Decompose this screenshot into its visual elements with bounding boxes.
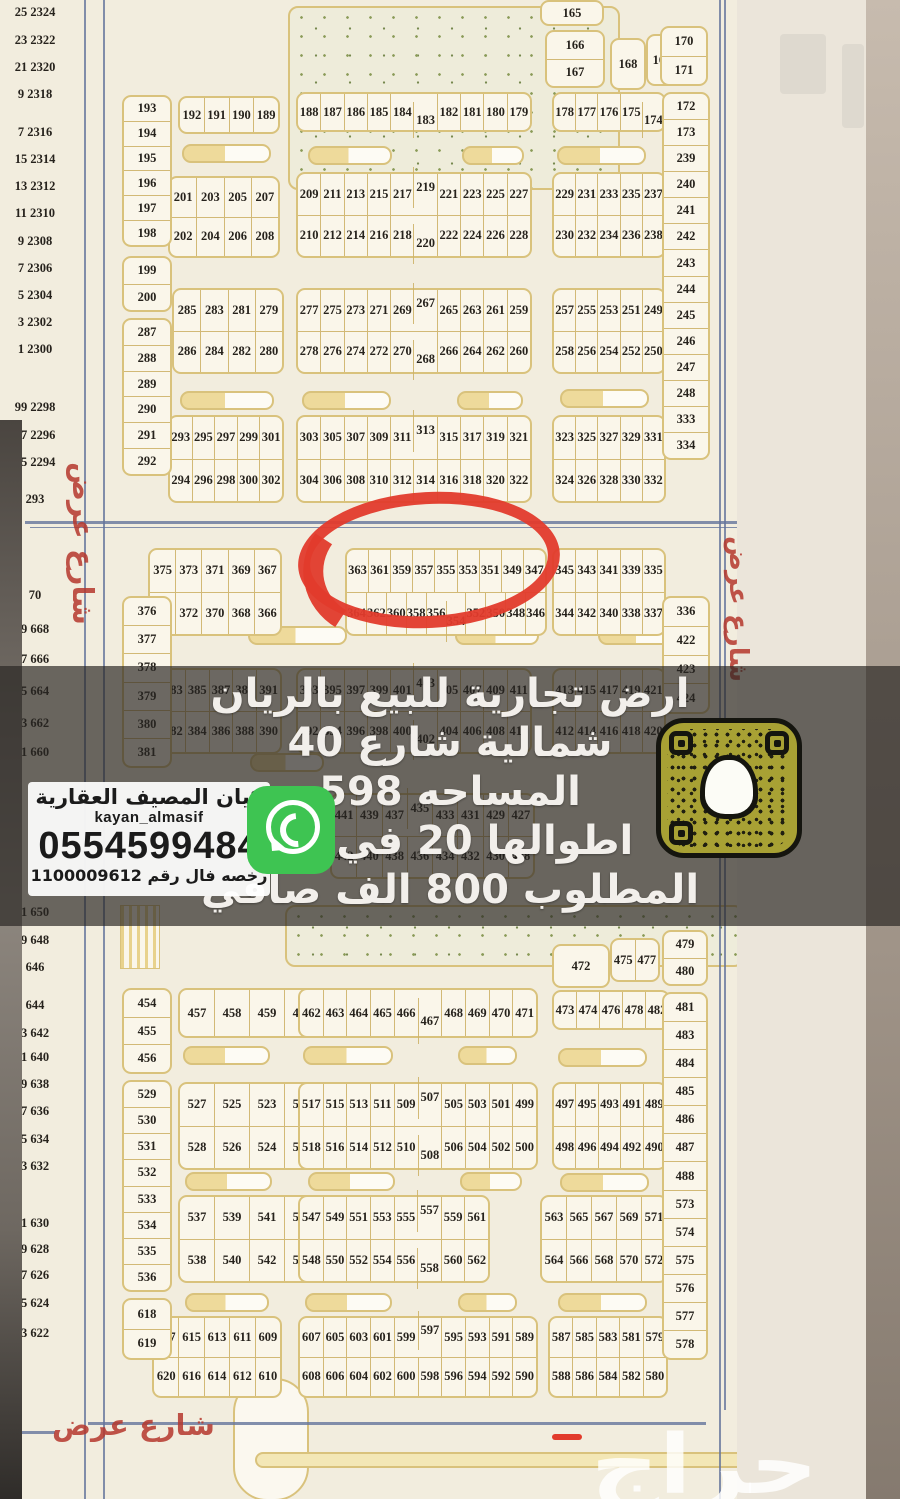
plot-number: 336 — [664, 598, 708, 626]
plot-row: 201203205207 — [170, 178, 278, 217]
plot-number: 277 — [298, 290, 320, 331]
plot-number: 268 — [413, 340, 436, 381]
plot-number: 553 — [370, 1197, 394, 1239]
agency-handle: kayan_almasif — [28, 809, 270, 826]
street-median — [462, 146, 524, 165]
plot-number: 577 — [664, 1302, 706, 1330]
plot-number: 181 — [460, 94, 483, 130]
snapchat-ghost-icon — [705, 760, 753, 814]
plot-number: 606 — [323, 1358, 347, 1397]
plot-number: 368 — [228, 593, 254, 635]
plot-number: 241 — [664, 197, 708, 223]
plot-number: 601 — [370, 1318, 394, 1357]
margin-artifact — [780, 34, 826, 94]
plot-row: 293295297299301 — [170, 417, 282, 459]
plot-block: 563565567569571564566568570572 — [540, 1195, 668, 1283]
plot-number: 530 — [124, 1107, 170, 1133]
plot-number: 556 — [394, 1240, 418, 1282]
plot-block: 5175155135115095075055035014995185165145… — [298, 1082, 538, 1170]
plot-block: 178177176175174 — [552, 92, 666, 132]
plot-number: 213 — [344, 174, 367, 215]
plot-number: 370 — [201, 593, 227, 635]
plot-number: 548 — [300, 1240, 323, 1282]
plot-number: 569 — [616, 1197, 641, 1239]
plot-number: 211 — [320, 174, 343, 215]
snapcode-corner-marker — [669, 821, 693, 845]
plot-number: 513 — [346, 1084, 370, 1126]
plot-number: 263 — [460, 290, 483, 331]
plot-number: 291 — [124, 422, 170, 448]
plot-number: 302 — [259, 460, 282, 502]
plot-number: 313 — [413, 410, 436, 452]
plot-number: 297 — [214, 417, 237, 459]
plot-number: 592 — [489, 1358, 513, 1397]
plot-block: 5475495515535555575595615485505525545565… — [298, 1195, 490, 1283]
plot-number: 199 — [124, 258, 170, 284]
plot-number: 210 — [298, 216, 320, 257]
plot-number: 498 — [554, 1127, 575, 1169]
plot-number: 174 — [642, 102, 664, 138]
plot-row: 229231233235237 — [554, 174, 664, 215]
plot-column: 199200 — [122, 256, 172, 312]
plot-number: 463 — [323, 990, 347, 1036]
plot-number: 493 — [598, 1084, 620, 1126]
snapcode-corner-marker — [669, 731, 693, 755]
plot-number: 504 — [465, 1127, 489, 1169]
plot-block: 3033053073093113133153173193213043063083… — [296, 415, 532, 503]
plot-row: 324326328330332 — [554, 459, 664, 502]
plot-row: 608606604602600598596594592590 — [300, 1357, 536, 1397]
plot-block: 188187186185184183182181180179 — [296, 92, 532, 132]
plot-number: 328 — [597, 460, 619, 502]
plot-number: 223 — [460, 174, 483, 215]
plot-number: 492 — [620, 1127, 642, 1169]
plot-row: 285283281279 — [174, 290, 282, 331]
left-edge-strip — [0, 420, 22, 1499]
plot-block: 497495493491489498496494492490 — [552, 1082, 667, 1170]
plot-block: 229231233235237230232234236238 — [552, 172, 666, 258]
plot-number: 173 — [664, 119, 708, 145]
haraj-logo: حراج — [509, 1418, 900, 1499]
plot-number: 481 — [664, 994, 706, 1021]
plot-number: 187 — [320, 94, 343, 130]
plot-number: 226 — [483, 216, 506, 257]
plot-number: 217 — [390, 174, 413, 215]
plot-number: 232 — [575, 216, 597, 257]
plot-number: 267 — [413, 283, 436, 324]
plot-number: 266 — [437, 332, 460, 373]
plot-number: 465 — [370, 990, 394, 1036]
plot-number: 536 — [124, 1264, 170, 1290]
plot-number: 567 — [591, 1197, 616, 1239]
street-median — [183, 1046, 270, 1065]
plot-number: 195 — [124, 146, 170, 171]
plot-number-edge: 9 2308 — [4, 234, 66, 249]
plot-number: 515 — [323, 1084, 347, 1126]
plot-number: 525 — [214, 1084, 249, 1126]
plot-number: 203 — [196, 178, 223, 217]
plot-number: 554 — [370, 1240, 394, 1282]
plot-number: 331 — [642, 417, 664, 459]
plot-number-edge: 13 2312 — [4, 179, 66, 194]
plot-number: 508 — [418, 1135, 442, 1177]
plot-row: 277275273271269267265263261259 — [298, 290, 530, 331]
plot-number: 315 — [437, 417, 460, 459]
plot-number: 580 — [643, 1358, 666, 1397]
caption-line-1: ارض تجارية للبيع بالريان — [40, 670, 860, 719]
plot-number: 321 — [507, 417, 530, 459]
plot-number: 484 — [664, 1049, 706, 1077]
plot-number: 534 — [124, 1212, 170, 1238]
plot-number: 458 — [214, 990, 249, 1036]
plot-number: 168 — [612, 40, 644, 88]
plot-number: 457 — [180, 990, 214, 1036]
plot-number: 182 — [437, 94, 460, 130]
plot-column: 287288289290291292 — [122, 318, 172, 476]
plot-number: 308 — [344, 460, 367, 502]
plot-block: 473474476478482 — [552, 990, 670, 1030]
plot-number: 311 — [390, 417, 413, 459]
plot-column: 479480 — [662, 930, 708, 986]
plot-number: 620 — [154, 1358, 178, 1397]
plot-block: 257255253251249258256254252250 — [552, 288, 666, 374]
plot-number-edge: 3 2302 — [4, 315, 66, 330]
plot-number: 207 — [251, 178, 278, 217]
snapcode-corner-marker — [765, 731, 789, 755]
plot-number: 300 — [237, 460, 260, 502]
plot-number: 573 — [664, 1190, 706, 1218]
plot-row: 607605603601599597595593591589 — [300, 1318, 536, 1357]
plot-column: 481483484485486487488573574575576577578 — [662, 992, 708, 1360]
plot-number: 236 — [620, 216, 642, 257]
haraj-listing-screenshot: 1651681691921911901891881871861851841831… — [0, 0, 900, 1499]
plot-number: 200 — [124, 284, 170, 311]
plot-number: 582 — [619, 1358, 642, 1397]
plot-number: 342 — [575, 593, 597, 635]
plot-number: 502 — [489, 1127, 513, 1169]
plot-number: 257 — [554, 290, 575, 331]
plot-number: 495 — [575, 1084, 597, 1126]
plot-row: 257255253251249 — [554, 290, 664, 331]
plot-number: 265 — [437, 290, 460, 331]
plot-number: 607 — [300, 1318, 323, 1357]
street-median — [558, 1048, 647, 1067]
plot-number: 186 — [344, 94, 367, 130]
plot-number: 527 — [180, 1084, 214, 1126]
plot-number: 254 — [597, 332, 619, 373]
plot-number: 231 — [575, 174, 597, 215]
plot-number: 613 — [204, 1318, 229, 1357]
plot-number: 472 — [554, 946, 608, 986]
plot-number: 237 — [642, 174, 664, 215]
plot-number: 588 — [550, 1358, 572, 1397]
plot-block: 2092112132152172192212232252272102122142… — [296, 172, 532, 258]
plot-number: 170 — [662, 28, 706, 56]
plot-number: 330 — [620, 460, 642, 502]
plot-number: 271 — [367, 290, 390, 331]
plot-number: 509 — [394, 1084, 418, 1126]
plot-block: 472 — [552, 944, 610, 988]
plot-number: 240 — [664, 171, 708, 197]
plot-number: 575 — [664, 1246, 706, 1274]
plot-number: 183 — [413, 102, 436, 138]
plot-row: 548550552554556558560562 — [300, 1239, 488, 1282]
plot-number: 462 — [300, 990, 323, 1036]
plot-number: 597 — [418, 1311, 442, 1350]
plot-row: 209211213215217219221223225227 — [298, 174, 530, 215]
plot-number: 285 — [174, 290, 200, 331]
plot-row: 620616614612610 — [154, 1357, 280, 1397]
agency-watermark-card: كيان المصيف العقارية kayan_almasif 05545… — [28, 782, 270, 896]
street-median — [560, 389, 649, 408]
plot-block: 475477 — [610, 938, 660, 982]
plot-number: 326 — [575, 460, 597, 502]
plot-number: 225 — [483, 174, 506, 215]
plot-number: 275 — [320, 290, 343, 331]
street-label-right: شارع عرض — [723, 536, 753, 682]
plot-number: 516 — [323, 1127, 347, 1169]
plot-number: 568 — [591, 1240, 616, 1282]
plot-number: 551 — [346, 1197, 370, 1239]
street-median — [302, 391, 391, 410]
plot-number: 196 — [124, 170, 170, 195]
plot-number: 589 — [512, 1318, 536, 1357]
street-median — [457, 391, 523, 410]
plot-number: 375 — [150, 550, 175, 592]
agency-phone-number: 0554599484 — [28, 826, 270, 866]
plot-column: 529530531532533534535536 — [122, 1080, 172, 1292]
plot-number: 205 — [224, 178, 251, 217]
plot-row: 286284282280 — [174, 331, 282, 373]
plot-row: 475477 — [612, 940, 658, 980]
plot-number: 540 — [214, 1240, 249, 1282]
plot-block: 293295297299301294296298300302 — [168, 415, 284, 503]
plot-number: 248 — [664, 380, 708, 406]
plot-number: 165 — [542, 2, 602, 24]
plot-number: 616 — [178, 1358, 203, 1397]
plot-number: 270 — [390, 332, 413, 373]
plot-number: 307 — [344, 417, 367, 459]
plot-row: 323325327329331 — [554, 417, 664, 459]
plot-number: 475 — [612, 940, 635, 980]
plot-number: 324 — [554, 460, 575, 502]
plot-number-edge: 5 2304 — [4, 288, 66, 303]
plot-number: 511 — [370, 1084, 394, 1126]
plot-number: 341 — [597, 550, 619, 592]
plot-number: 288 — [124, 345, 170, 371]
plot-number: 296 — [192, 460, 215, 502]
plot-number: 259 — [507, 290, 530, 331]
plot-number: 594 — [465, 1358, 489, 1397]
plot-number: 214 — [344, 216, 367, 257]
plot-number: 517 — [300, 1084, 323, 1126]
plot-block: 6076056036015995975955935915896086066046… — [298, 1316, 538, 1398]
plot-number: 595 — [441, 1318, 465, 1357]
plot-number: 583 — [596, 1318, 619, 1357]
plot-number: 507 — [418, 1077, 442, 1119]
plot-number: 264 — [460, 332, 483, 373]
plot-number: 371 — [201, 550, 227, 592]
plot-number: 255 — [575, 290, 597, 331]
plot-number: 208 — [251, 218, 278, 257]
plot-number: 560 — [441, 1240, 465, 1282]
plot-number: 209 — [298, 174, 320, 215]
street-median — [308, 1172, 395, 1191]
plot-number: 229 — [554, 174, 575, 215]
plot-number: 273 — [344, 290, 367, 331]
plot-number: 216 — [367, 216, 390, 257]
plot-number: 598 — [418, 1358, 442, 1397]
plot-row: 497495493491489 — [554, 1084, 665, 1126]
plot-row: 498496494492490 — [554, 1126, 665, 1169]
plot-row: 617615613611609 — [154, 1318, 280, 1357]
street-median — [458, 1046, 517, 1065]
agency-license: رخصه فال رقم 1100009612 — [28, 866, 270, 885]
plot-number: 518 — [300, 1127, 323, 1169]
plot-number-edge: 99 2298 — [4, 400, 66, 415]
plot-number: 306 — [320, 460, 343, 502]
plot-number: 491 — [620, 1084, 642, 1126]
plot-row: 517515513511509507505503501499 — [300, 1084, 536, 1126]
plot-number: 584 — [596, 1358, 619, 1397]
plot-number: 262 — [483, 332, 506, 373]
plot-number: 599 — [394, 1318, 418, 1357]
plot-number: 343 — [575, 550, 597, 592]
street-median — [185, 1172, 272, 1191]
plot-number: 247 — [664, 354, 708, 380]
plot-number: 596 — [441, 1358, 465, 1397]
plot-number: 172 — [664, 94, 708, 119]
plot-number: 470 — [489, 990, 513, 1036]
plot-number: 565 — [566, 1197, 591, 1239]
plot-number: 503 — [465, 1084, 489, 1126]
plot-number: 564 — [542, 1240, 566, 1282]
street-median — [308, 146, 392, 165]
plot-number-edge: 1 2300 — [4, 342, 66, 357]
plot-row: 202204206208 — [170, 217, 278, 257]
plot-number: 283 — [200, 290, 227, 331]
plot-number: 303 — [298, 417, 320, 459]
plot-number: 189 — [253, 98, 278, 132]
plot-number: 292 — [124, 448, 170, 474]
whatsapp-phone-glyph — [273, 806, 321, 854]
plot-number: 603 — [346, 1318, 370, 1357]
plot-number: 228 — [507, 216, 530, 257]
plot-number: 309 — [367, 417, 390, 459]
plot-number: 459 — [249, 990, 284, 1036]
plot-number: 258 — [554, 332, 575, 373]
plot-number: 242 — [664, 223, 708, 249]
plot-block: 323325327329331324326328330332 — [552, 415, 666, 503]
plot-number: 585 — [572, 1318, 595, 1357]
plot-number: 301 — [259, 417, 282, 459]
plot-number: 483 — [664, 1021, 706, 1049]
plot-number-edge: 21 2320 — [4, 60, 66, 75]
plot-number: 454 — [124, 990, 170, 1017]
plot-column: 170171 — [660, 26, 708, 86]
plot-number: 602 — [370, 1358, 394, 1397]
plot-number: 233 — [597, 174, 619, 215]
plot-number: 550 — [323, 1240, 347, 1282]
plot-number: 176 — [597, 94, 619, 130]
plot-number: 369 — [228, 550, 254, 592]
plot-number: 319 — [483, 417, 506, 459]
plot-number: 178 — [554, 94, 575, 130]
plot-number: 227 — [507, 174, 530, 215]
plot-number-edge: 9 2318 — [4, 87, 66, 102]
plot-number: 191 — [204, 98, 229, 132]
plot-number: 230 — [554, 216, 575, 257]
plot-number: 480 — [664, 958, 706, 985]
plot-number: 587 — [550, 1318, 572, 1357]
plot-block: 587585583581579588586584582580 — [548, 1316, 668, 1398]
plot-number: 523 — [249, 1084, 284, 1126]
plot-number: 468 — [441, 990, 465, 1036]
plot-number: 261 — [483, 290, 506, 331]
plot-number: 542 — [249, 1240, 284, 1282]
plot-number: 557 — [417, 1190, 441, 1232]
plot-number: 282 — [228, 332, 255, 373]
plot-number: 287 — [124, 320, 170, 345]
plot-row: 294296298300302 — [170, 459, 282, 502]
plot-number: 171 — [662, 56, 706, 85]
plot-number: 299 — [237, 417, 260, 459]
plot-number: 212 — [320, 216, 343, 257]
plot-number: 289 — [124, 371, 170, 397]
plot-number: 531 — [124, 1133, 170, 1159]
plot-number: 561 — [464, 1197, 488, 1239]
plot-number: 619 — [124, 1329, 170, 1359]
plot-number: 317 — [460, 417, 483, 459]
plot-number: 167 — [547, 59, 603, 87]
agency-name: كيان المصيف العقارية — [28, 785, 270, 809]
plot-row: 462463464465466467468469470471 — [300, 990, 536, 1036]
plot-number: 499 — [512, 1084, 536, 1126]
plot-number: 510 — [394, 1127, 418, 1169]
plot-number: 501 — [489, 1084, 513, 1126]
plot-number: 466 — [394, 990, 418, 1036]
street-median — [303, 1046, 393, 1065]
plot-number: 325 — [575, 417, 597, 459]
plot-number: 488 — [664, 1161, 706, 1189]
plot-column: 166167 — [545, 30, 605, 88]
plot-number: 471 — [512, 990, 536, 1036]
plot-number-edge: 25 2324 — [4, 5, 66, 20]
plot-number: 251 — [620, 290, 642, 331]
plot-number: 562 — [464, 1240, 488, 1282]
plot-number: 175 — [620, 94, 642, 130]
plot-number: 537 — [180, 1197, 214, 1239]
plot-number: 455 — [124, 1017, 170, 1045]
plot-number: 524 — [249, 1127, 284, 1169]
plot-number: 290 — [124, 396, 170, 422]
plot-number: 276 — [320, 332, 343, 373]
plot-block: 201203205207202204206208 — [168, 176, 280, 258]
whatsapp-ring — [266, 800, 320, 854]
plot-number: 320 — [483, 460, 506, 502]
plot-row: 345343341339335 — [554, 550, 664, 592]
plot-number: 334 — [664, 432, 708, 458]
plot-number: 526 — [214, 1127, 249, 1169]
plot-number: 274 — [344, 332, 367, 373]
plot-number: 566 — [566, 1240, 591, 1282]
plot-number: 529 — [124, 1082, 170, 1107]
plot-number: 218 — [390, 216, 413, 257]
plot-number: 215 — [367, 174, 390, 215]
plot-row: 588586584582580 — [550, 1357, 666, 1397]
plot-number: 322 — [507, 460, 530, 502]
plot-row: 188187186185184183182181180179 — [298, 94, 530, 130]
